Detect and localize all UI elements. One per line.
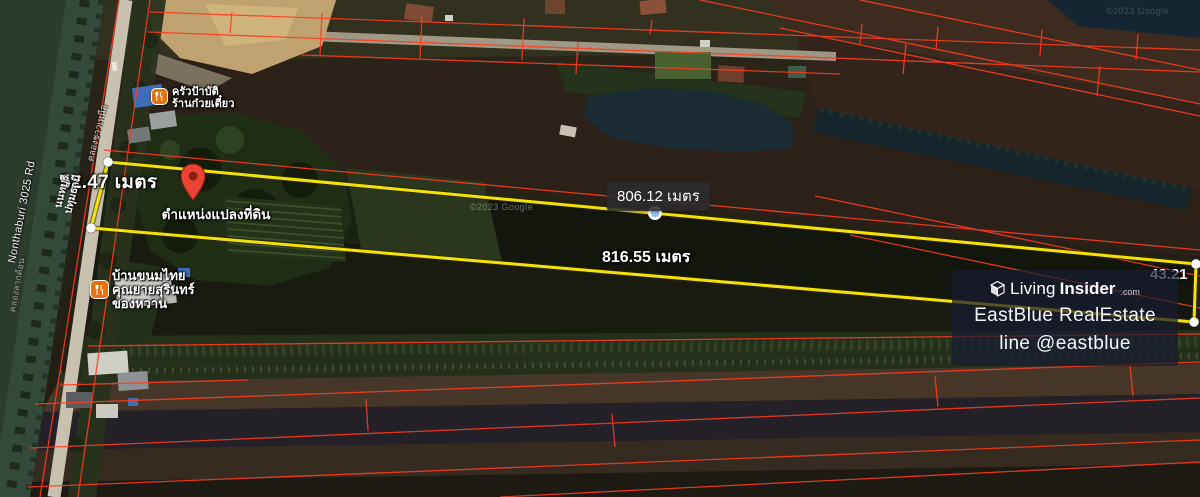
pin-icon bbox=[180, 163, 206, 201]
watermark-line1: EastBlue RealEstate bbox=[958, 305, 1172, 327]
poi-label: บ้านขนมไทย คุณยายสุรินทร์ ของหวาน bbox=[112, 269, 195, 311]
measure-vertex-handle[interactable] bbox=[103, 157, 113, 167]
map-attribution: ©2023 Google bbox=[470, 202, 533, 212]
measure-vertex-handle[interactable] bbox=[1189, 317, 1199, 327]
watermark-line2: line @eastblue bbox=[958, 333, 1172, 355]
fork-knife-icon bbox=[95, 285, 105, 295]
measure-label-bottom: 816.55 เมตร bbox=[602, 245, 690, 270]
pin-label: ตำแหน่งแปลงที่ดิน bbox=[150, 203, 282, 225]
watermark-panel: LivingInsider.com EastBlue RealEstate li… bbox=[952, 270, 1178, 366]
restaurant-poi-icon[interactable] bbox=[90, 280, 109, 299]
measure-vertex-handle[interactable] bbox=[1191, 259, 1200, 269]
restaurant-poi-icon[interactable] bbox=[151, 88, 168, 105]
livinginsider-logo-icon bbox=[990, 281, 1005, 297]
location-pin[interactable] bbox=[180, 163, 206, 206]
fork-knife-icon bbox=[155, 92, 164, 101]
livinginsider-brand: LivingInsider.com bbox=[958, 279, 1172, 299]
measure-label-top: 806.12 เมตร bbox=[607, 182, 710, 211]
measure-vertex-handle[interactable] bbox=[86, 223, 96, 233]
poi-label: ครัวป้าบัติ ร้านก๋วยเตี๋ยว bbox=[172, 87, 234, 111]
satellite-terrain bbox=[0, 0, 1200, 497]
map-viewport[interactable]: 52.47 เมตร 806.12 เมตร 816.55 เมตร 43.21… bbox=[0, 0, 1200, 497]
map-attribution: ©2023 Google bbox=[1106, 6, 1169, 16]
